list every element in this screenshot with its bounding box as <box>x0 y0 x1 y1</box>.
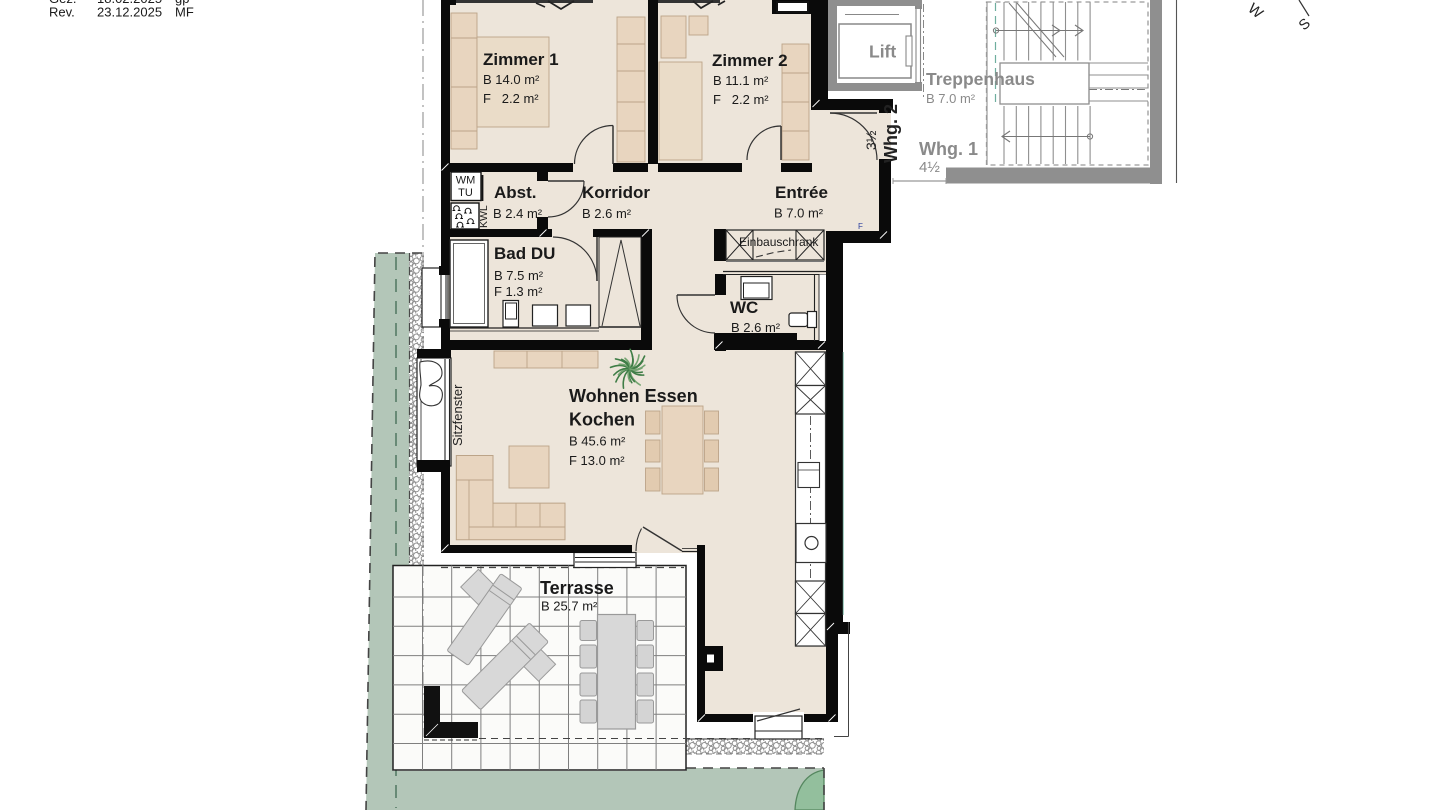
svg-text:MF: MF <box>175 5 194 20</box>
svg-text:Bad DU: Bad DU <box>494 244 555 263</box>
svg-text:Treppenhaus: Treppenhaus <box>926 69 1035 89</box>
svg-text:B 2.4 m²: B 2.4 m² <box>493 206 543 221</box>
svg-text:B 45.6 m²: B 45.6 m² <box>569 434 626 449</box>
svg-text:Zimmer 1: Zimmer 1 <box>483 50 559 69</box>
svg-text:Lift: Lift <box>869 42 896 62</box>
svg-text:Terrasse: Terrasse <box>540 578 614 598</box>
svg-text:Whg. 2: Whg. 2 <box>881 104 901 163</box>
svg-text:B 11.1 m²: B 11.1 m² <box>713 73 769 88</box>
svg-text:B 14.0 m²: B 14.0 m² <box>483 72 540 87</box>
svg-text:B 2.6 m²: B 2.6 m² <box>582 206 632 221</box>
svg-text:B 2.6 m²: B 2.6 m² <box>731 320 781 335</box>
svg-text:B 7.0 m²: B 7.0 m² <box>926 91 976 106</box>
svg-text:Sitzfenster: Sitzfenster <box>450 384 465 446</box>
svg-text:F: F <box>858 222 863 231</box>
svg-text:Einbauschrank: Einbauschrank <box>739 235 819 249</box>
svg-text:F 1.3 m²: F 1.3 m² <box>494 284 543 299</box>
svg-text:Abst.: Abst. <box>494 183 537 202</box>
svg-text:TU: TU <box>458 187 473 199</box>
svg-text:B 7.0 m²: B 7.0 m² <box>774 206 824 221</box>
svg-text:Whg. 1: Whg. 1 <box>919 139 978 159</box>
svg-text:WM: WM <box>456 175 476 187</box>
svg-text:F 13.0 m²: F 13.0 m² <box>569 453 625 468</box>
svg-text:B 25.7 m²: B 25.7 m² <box>541 599 598 614</box>
svg-text:3½: 3½ <box>863 130 879 150</box>
svg-text:F 2.2 m²: F 2.2 m² <box>713 92 769 107</box>
svg-text:WC: WC <box>730 298 758 317</box>
svg-text:F 2.2 m²: F 2.2 m² <box>483 91 539 106</box>
svg-text:Wohnen Essen: Wohnen Essen <box>569 386 698 406</box>
svg-text:23.12.2025: 23.12.2025 <box>97 5 162 20</box>
svg-text:B 7.5 m²: B 7.5 m² <box>494 268 544 283</box>
svg-text:Kochen: Kochen <box>569 410 635 430</box>
svg-text:Zimmer 2: Zimmer 2 <box>712 51 788 70</box>
svg-text:KWL: KWL <box>478 205 490 228</box>
svg-text:4½: 4½ <box>919 159 940 176</box>
svg-text:Entrée: Entrée <box>775 183 828 202</box>
svg-text:Korridor: Korridor <box>582 183 650 202</box>
svg-text:Rev.: Rev. <box>49 5 75 20</box>
